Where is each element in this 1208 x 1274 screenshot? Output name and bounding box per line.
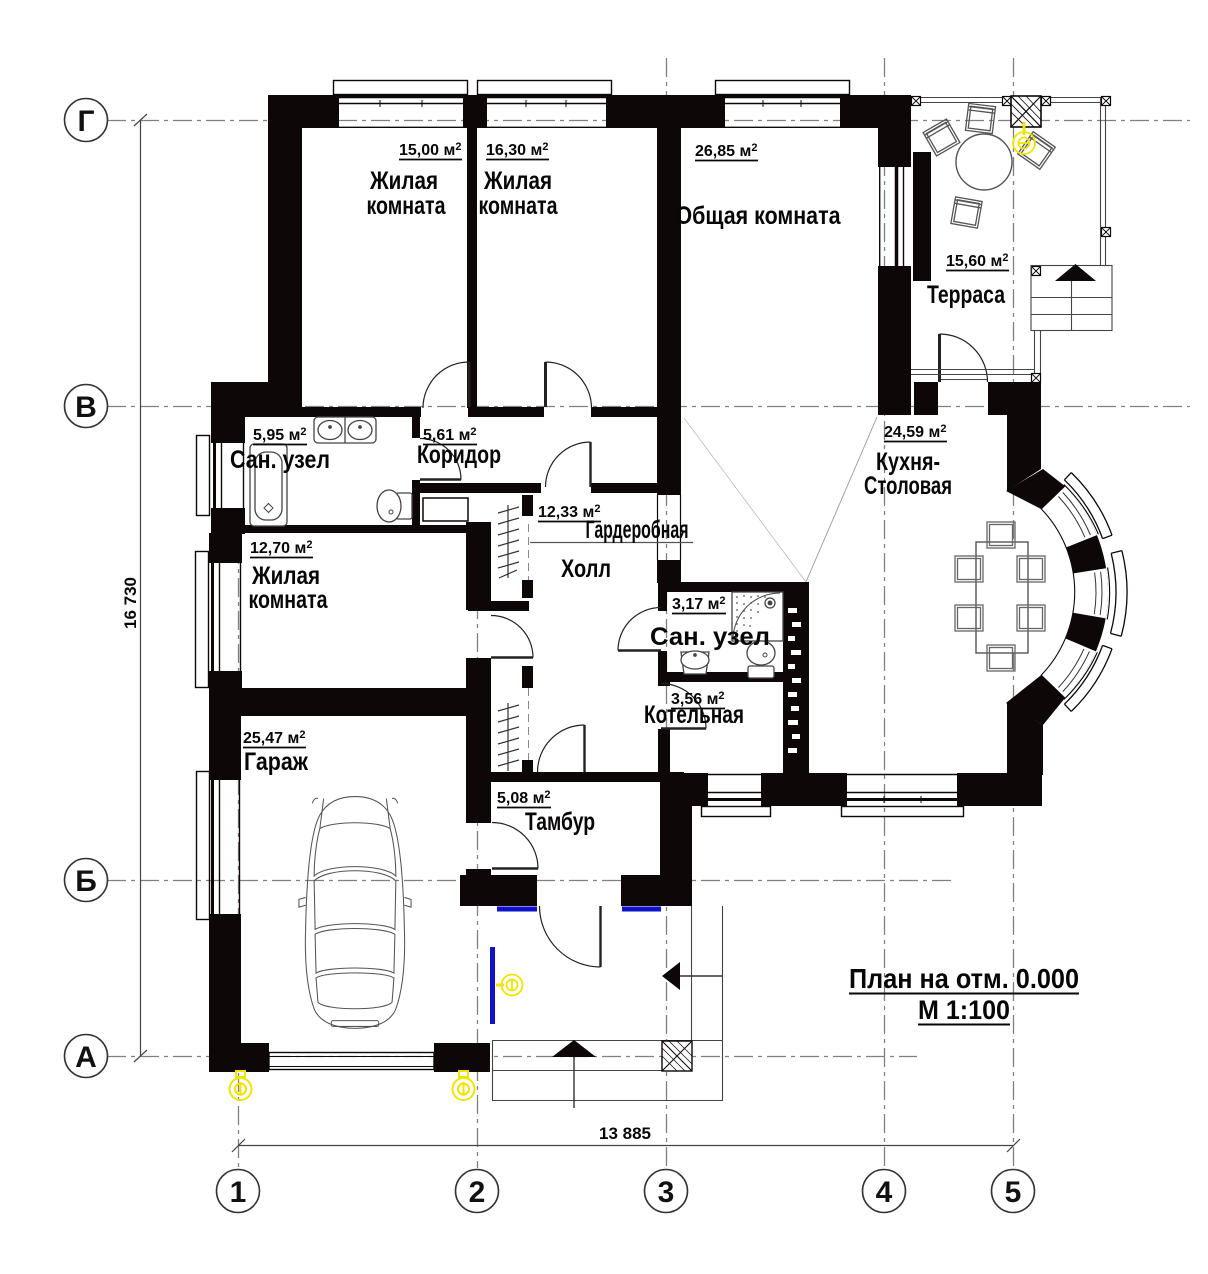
svg-text:Сан. узел: Сан. узел [230,446,330,474]
svg-text:Г: Г [77,105,94,138]
svg-text:5: 5 [1005,1176,1022,1209]
svg-text:Жилая: Жилая [369,167,438,195]
svg-text:13 885: 13 885 [599,1124,651,1143]
svg-text:25,47 м2: 25,47 м2 [243,729,305,747]
svg-text:3: 3 [658,1176,675,1209]
svg-text:3,17 м2: 3,17 м2 [672,595,726,613]
svg-text:Тамбур: Тамбур [525,808,595,836]
svg-text:Терраса: Терраса [927,281,1006,309]
svg-text:26,85 м2: 26,85 м2 [695,142,757,160]
svg-text:15,00 м2: 15,00 м2 [399,141,461,159]
svg-text:План на отм. 0.000: План на отм. 0.000 [849,963,1079,994]
svg-text:1: 1 [230,1176,247,1209]
svg-text:5,08 м2: 5,08 м2 [497,789,551,807]
svg-text:Столовая: Столовая [864,472,952,500]
svg-text:24,59 м2: 24,59 м2 [884,423,946,441]
svg-text:В: В [75,391,97,424]
svg-text:16,30 м2: 16,30 м2 [486,141,548,159]
svg-text:М 1:100: М 1:100 [918,995,1010,1025]
svg-text:Коридор: Коридор [417,441,501,469]
svg-text:15,60 м2: 15,60 м2 [946,252,1008,270]
svg-text:5,95 м2: 5,95 м2 [253,426,307,444]
svg-text:А: А [75,1041,97,1074]
svg-text:комната: комната [479,192,559,220]
svg-text:16 730: 16 730 [121,577,140,629]
svg-text:Сан. узел: Сан. узел [650,623,770,651]
svg-text:комната: комната [367,192,447,220]
svg-text:4: 4 [876,1176,893,1209]
svg-text:2: 2 [469,1176,486,1209]
svg-text:Гараж: Гараж [244,748,308,776]
svg-text:комната: комната [249,586,329,614]
svg-text:Жилая: Жилая [483,167,552,195]
svg-text:Общая комната: Общая комната [676,202,842,230]
svg-text:12,70 м2: 12,70 м2 [250,539,312,557]
svg-text:Гардеробная: Гардеробная [586,516,689,544]
svg-text:Холл: Холл [561,555,611,583]
svg-text:Котельная: Котельная [644,701,744,729]
svg-text:Б: Б [75,865,97,898]
